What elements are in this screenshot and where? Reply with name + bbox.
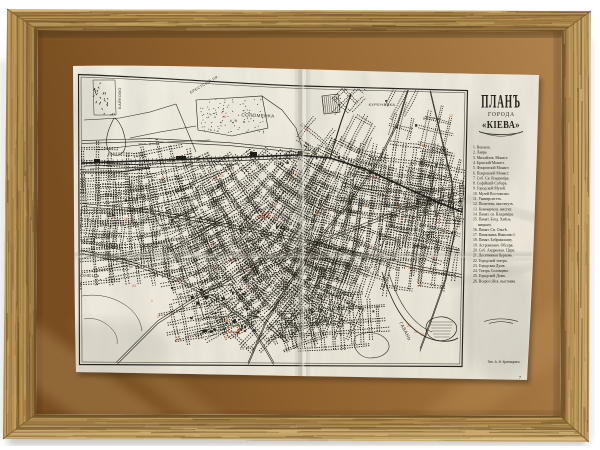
svg-text:ОНЕЦЪ: ОНЕЦЪ	[80, 273, 100, 278]
svg-text:16. Памят. Св. Ольгѣ.: 16. Памят. Св. Ольгѣ.	[473, 228, 508, 232]
svg-text:1: 1	[151, 299, 153, 303]
svg-text:20: 20	[255, 215, 259, 219]
svg-text:20: 20	[226, 335, 230, 339]
svg-text:4. Братскій Монаст.: 4. Братскій Монаст.	[473, 161, 505, 165]
svg-text:13: 13	[408, 266, 412, 270]
svg-text:8. Софійскій Соборъ.: 8. Софійскій Соборъ.	[473, 182, 507, 186]
svg-text:11. Университетъ.: 11. Университетъ.	[473, 197, 502, 201]
svg-text:10: 10	[414, 330, 418, 334]
svg-text:5. Флоровскій Монаст.: 5. Флоровскій Монаст.	[473, 166, 509, 170]
svg-text:12: 12	[246, 286, 250, 290]
svg-text:1. Вокзалъ.: 1. Вокзалъ.	[473, 146, 491, 150]
svg-text:19. Астрономич. Обсерв.: 19. Астрономич. Обсерв.	[473, 243, 513, 247]
svg-text:КУРЕНЕВКА: КУРЕНЕВКА	[369, 103, 396, 107]
svg-text:12: 12	[177, 278, 181, 282]
svg-text:16: 16	[220, 174, 224, 178]
svg-text:ГОРОДА: ГОРОДА	[488, 111, 515, 118]
svg-text:ницкаго.: ницкаго.	[478, 223, 492, 227]
svg-text:7: 7	[139, 166, 141, 170]
svg-text:3. Михайлов. Монаст.: 3. Михайлов. Монаст.	[473, 156, 508, 160]
svg-text:11: 11	[421, 333, 425, 337]
svg-text:10. Музей Востокозап.: 10. Музей Востокозап.	[473, 192, 509, 196]
svg-text:7: 7	[159, 313, 161, 317]
svg-text:БАЙКОВО: БАЙКОВО	[118, 87, 122, 109]
svg-text:6. Покровскій Монаст.: 6. Покровскій Монаст.	[473, 171, 509, 175]
svg-text:9. Городской Музей.: 9. Городской Музей.	[473, 187, 506, 191]
svg-text:16: 16	[222, 115, 226, 119]
svg-text:2. Лавра.: 2. Лавра.	[473, 151, 487, 155]
svg-text:2: 2	[346, 126, 348, 130]
svg-text:17: 17	[274, 203, 278, 207]
svg-text:26: 26	[396, 205, 400, 209]
svg-text:ПРІОРКА: ПРІОРКА	[423, 117, 442, 121]
svg-text:17. Памятникъ Николаю I.: 17. Памятникъ Николаю I.	[473, 233, 516, 237]
svg-text:28: 28	[316, 211, 320, 215]
svg-text:11: 11	[372, 176, 376, 180]
svg-text:ПЛАНЪ: ПЛАНЪ	[481, 92, 521, 112]
svg-text:12: 12	[449, 114, 453, 118]
svg-text:26: 26	[124, 217, 128, 221]
svg-text:13: 13	[294, 173, 298, 177]
svg-text:24: 24	[132, 284, 136, 288]
svg-text:18: 18	[399, 217, 403, 221]
svg-text:23: 23	[225, 319, 229, 323]
svg-text:1: 1	[439, 217, 441, 221]
svg-text:15. Памят. Богд. Хмѣль: 15. Памят. Богд. Хмѣль	[473, 218, 511, 222]
svg-text:3: 3	[323, 105, 325, 109]
svg-text:22. Городской театръ.: 22. Городской театръ.	[473, 259, 508, 263]
svg-text:26. Всероссійск. выставка.: 26. Всероссійск. выставка.	[473, 279, 516, 283]
svg-text:12: 12	[290, 177, 294, 181]
svg-text:21. Десятинная Церковь.: 21. Десятинная Церковь.	[473, 254, 513, 258]
svg-text:3: 3	[214, 265, 216, 269]
svg-text:Тип. А. И. Криницкаго.: Тип. А. И. Криницкаго.	[488, 360, 521, 364]
svg-text:23: 23	[176, 337, 180, 341]
svg-text:7. Соб. Св. Владиміра.: 7. Соб. Св. Владиміра.	[473, 176, 509, 180]
svg-text:13. Коммерческ. инстит.: 13. Коммерческ. инстит.	[473, 207, 512, 211]
svg-text:17: 17	[369, 244, 373, 248]
svg-text:7: 7	[519, 375, 521, 380]
svg-text:24: 24	[407, 324, 411, 328]
svg-text:ЖЕЛ. ДОР.: ЖЕЛ. ДОР.	[138, 142, 158, 146]
svg-text:2: 2	[249, 269, 251, 273]
svg-text:5: 5	[306, 128, 308, 132]
svg-text:14. Памят. св. Владиміра.: 14. Памят. св. Владиміра.	[473, 213, 514, 217]
svg-text:12: 12	[231, 259, 235, 263]
svg-text:25. Городской Домъ.: 25. Городской Домъ.	[473, 274, 506, 278]
svg-text:8: 8	[161, 177, 163, 181]
svg-text:18. Памят. Бобринскому.: 18. Памят. Бобринскому.	[473, 238, 513, 242]
svg-text:12: 12	[272, 215, 276, 219]
svg-text:23. Городская Дума.: 23. Городская Дума.	[473, 264, 505, 268]
svg-text:15: 15	[441, 229, 445, 233]
svg-text:«КІЕВА»: «КІЕВА»	[482, 119, 520, 131]
svg-text:28: 28	[364, 204, 368, 208]
svg-text:19: 19	[210, 243, 214, 247]
svg-text:П Р Ъ: П Р Ъ	[240, 346, 256, 352]
svg-text:20. Соб. Андреевск. Церк.: 20. Соб. Андреевск. Церк.	[473, 249, 515, 253]
svg-text:21: 21	[422, 144, 426, 148]
svg-text:24. Театръ Соловцева.: 24. Театръ Соловцева.	[473, 269, 509, 273]
svg-text:ВОКЗАЛЪ: ВОКЗАЛЪ	[203, 159, 222, 163]
svg-text:28: 28	[418, 283, 422, 287]
svg-text:12. Политехн. институтъ.: 12. Политехн. институтъ.	[473, 202, 514, 206]
svg-text:25: 25	[213, 177, 217, 181]
